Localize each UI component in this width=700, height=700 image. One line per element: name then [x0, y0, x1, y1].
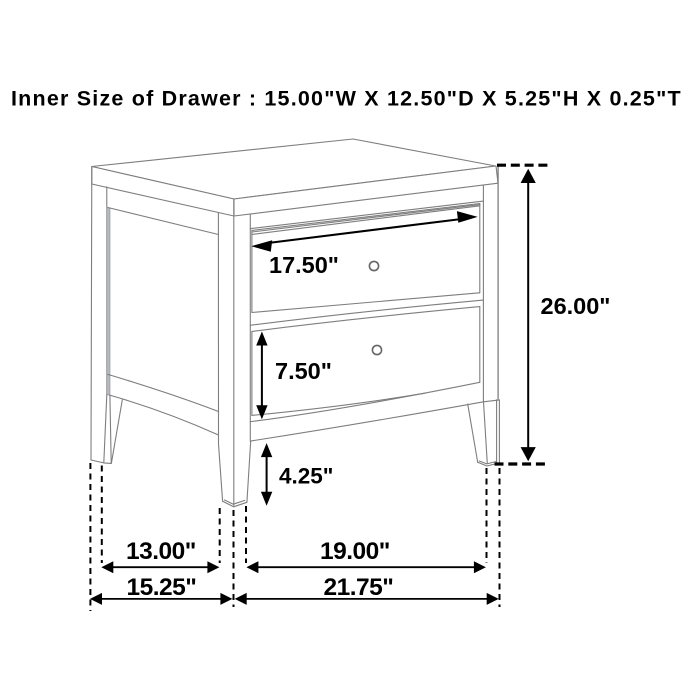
svg-text:21.75": 21.75": [324, 574, 394, 601]
svg-text:Inner Size of Drawer : 15.00"W: Inner Size of Drawer : 15.00"W X 12.50"D…: [11, 87, 682, 111]
svg-text:13.00": 13.00": [126, 538, 196, 565]
svg-text:7.50": 7.50": [275, 358, 332, 384]
svg-text:17.50": 17.50": [269, 252, 339, 278]
svg-text:26.00": 26.00": [541, 293, 611, 319]
svg-text:15.25": 15.25": [127, 574, 197, 601]
svg-text:4.25": 4.25": [279, 463, 333, 488]
svg-text:19.00": 19.00": [320, 538, 390, 565]
